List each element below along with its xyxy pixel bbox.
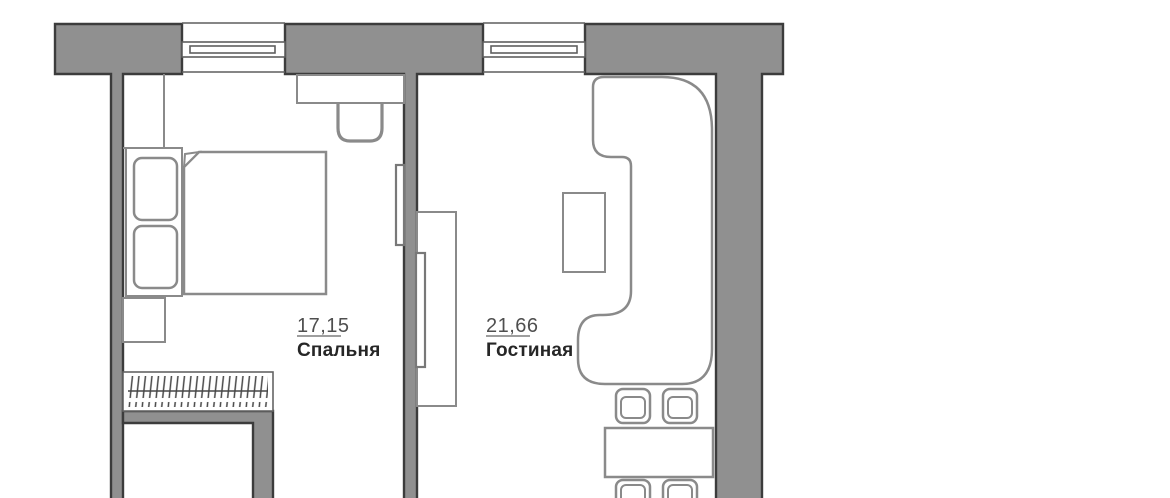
living-label: 21,66 Гостиная bbox=[486, 315, 573, 361]
chair-seat bbox=[621, 485, 645, 498]
window-living bbox=[483, 23, 585, 72]
living-name: Гостиная bbox=[486, 340, 573, 361]
bed-mattress bbox=[184, 152, 326, 294]
bedroom-label: 17,15 Спальня bbox=[297, 315, 380, 361]
dining-table bbox=[605, 428, 713, 477]
bedroom-tv bbox=[396, 165, 404, 245]
bedroom-name: Спальня bbox=[297, 340, 380, 361]
pillow bbox=[134, 226, 177, 288]
wardrobe-with-hangers bbox=[123, 372, 273, 411]
corner-closet bbox=[123, 74, 164, 148]
pillow bbox=[134, 158, 177, 220]
window-bedroom bbox=[182, 23, 285, 72]
chair-seat bbox=[668, 485, 692, 498]
chair-seat bbox=[621, 397, 645, 418]
stool bbox=[338, 104, 382, 141]
bedroom-area: 17,15 bbox=[297, 315, 350, 337]
wall-bathroom-corner bbox=[123, 411, 273, 498]
coffee-table bbox=[563, 193, 605, 272]
living-tv bbox=[416, 253, 425, 367]
desk bbox=[297, 75, 404, 103]
floor-plan: 17,15 Спальня 21,66 Гостиная bbox=[0, 0, 1170, 498]
chair-seat bbox=[668, 397, 692, 418]
double-bed bbox=[126, 148, 326, 296]
living-area: 21,66 bbox=[486, 315, 539, 337]
floor-plan-svg: 17,15 Спальня 21,66 Гостиная bbox=[0, 0, 1170, 498]
dining-set bbox=[605, 389, 713, 498]
nightstand bbox=[123, 298, 165, 342]
